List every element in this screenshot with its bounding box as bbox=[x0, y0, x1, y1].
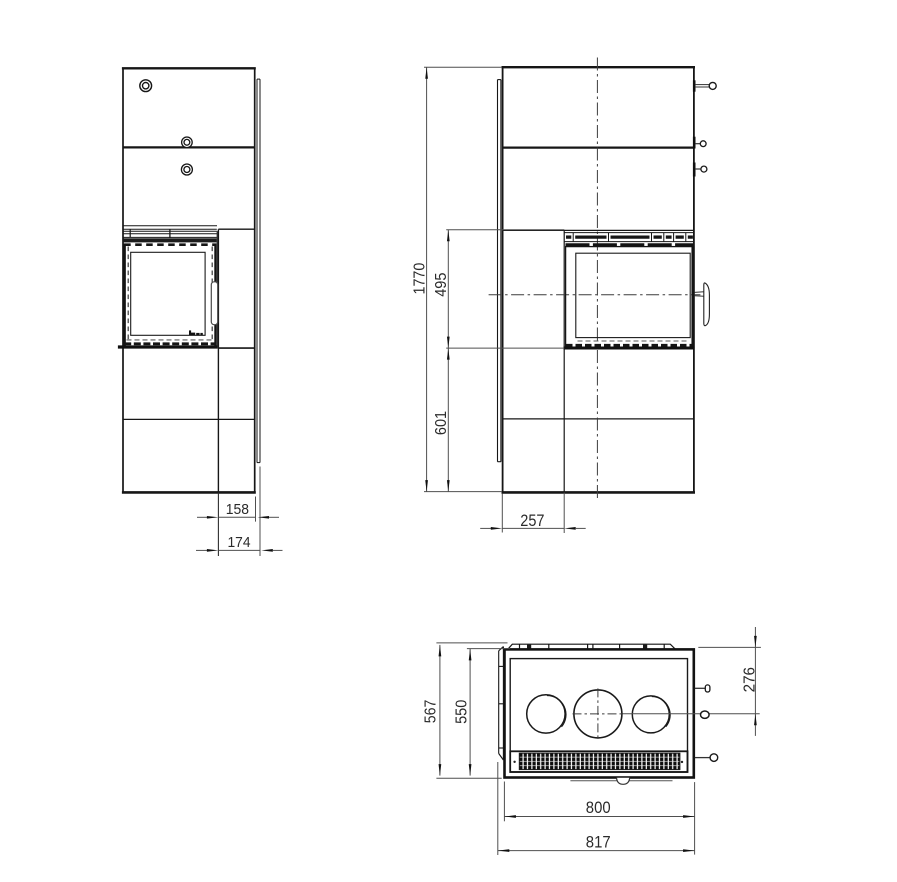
svg-text:800: 800 bbox=[586, 798, 611, 817]
svg-text:550: 550 bbox=[454, 700, 471, 724]
svg-text:158: 158 bbox=[226, 501, 249, 518]
svg-text:276: 276 bbox=[741, 667, 758, 693]
svg-text:257: 257 bbox=[520, 512, 544, 530]
svg-text:174: 174 bbox=[228, 534, 251, 551]
svg-text:601: 601 bbox=[433, 411, 450, 435]
svg-text:817: 817 bbox=[586, 833, 611, 852]
svg-text:495: 495 bbox=[433, 272, 450, 296]
svg-text:567: 567 bbox=[423, 700, 440, 724]
svg-text:1770: 1770 bbox=[412, 263, 429, 295]
